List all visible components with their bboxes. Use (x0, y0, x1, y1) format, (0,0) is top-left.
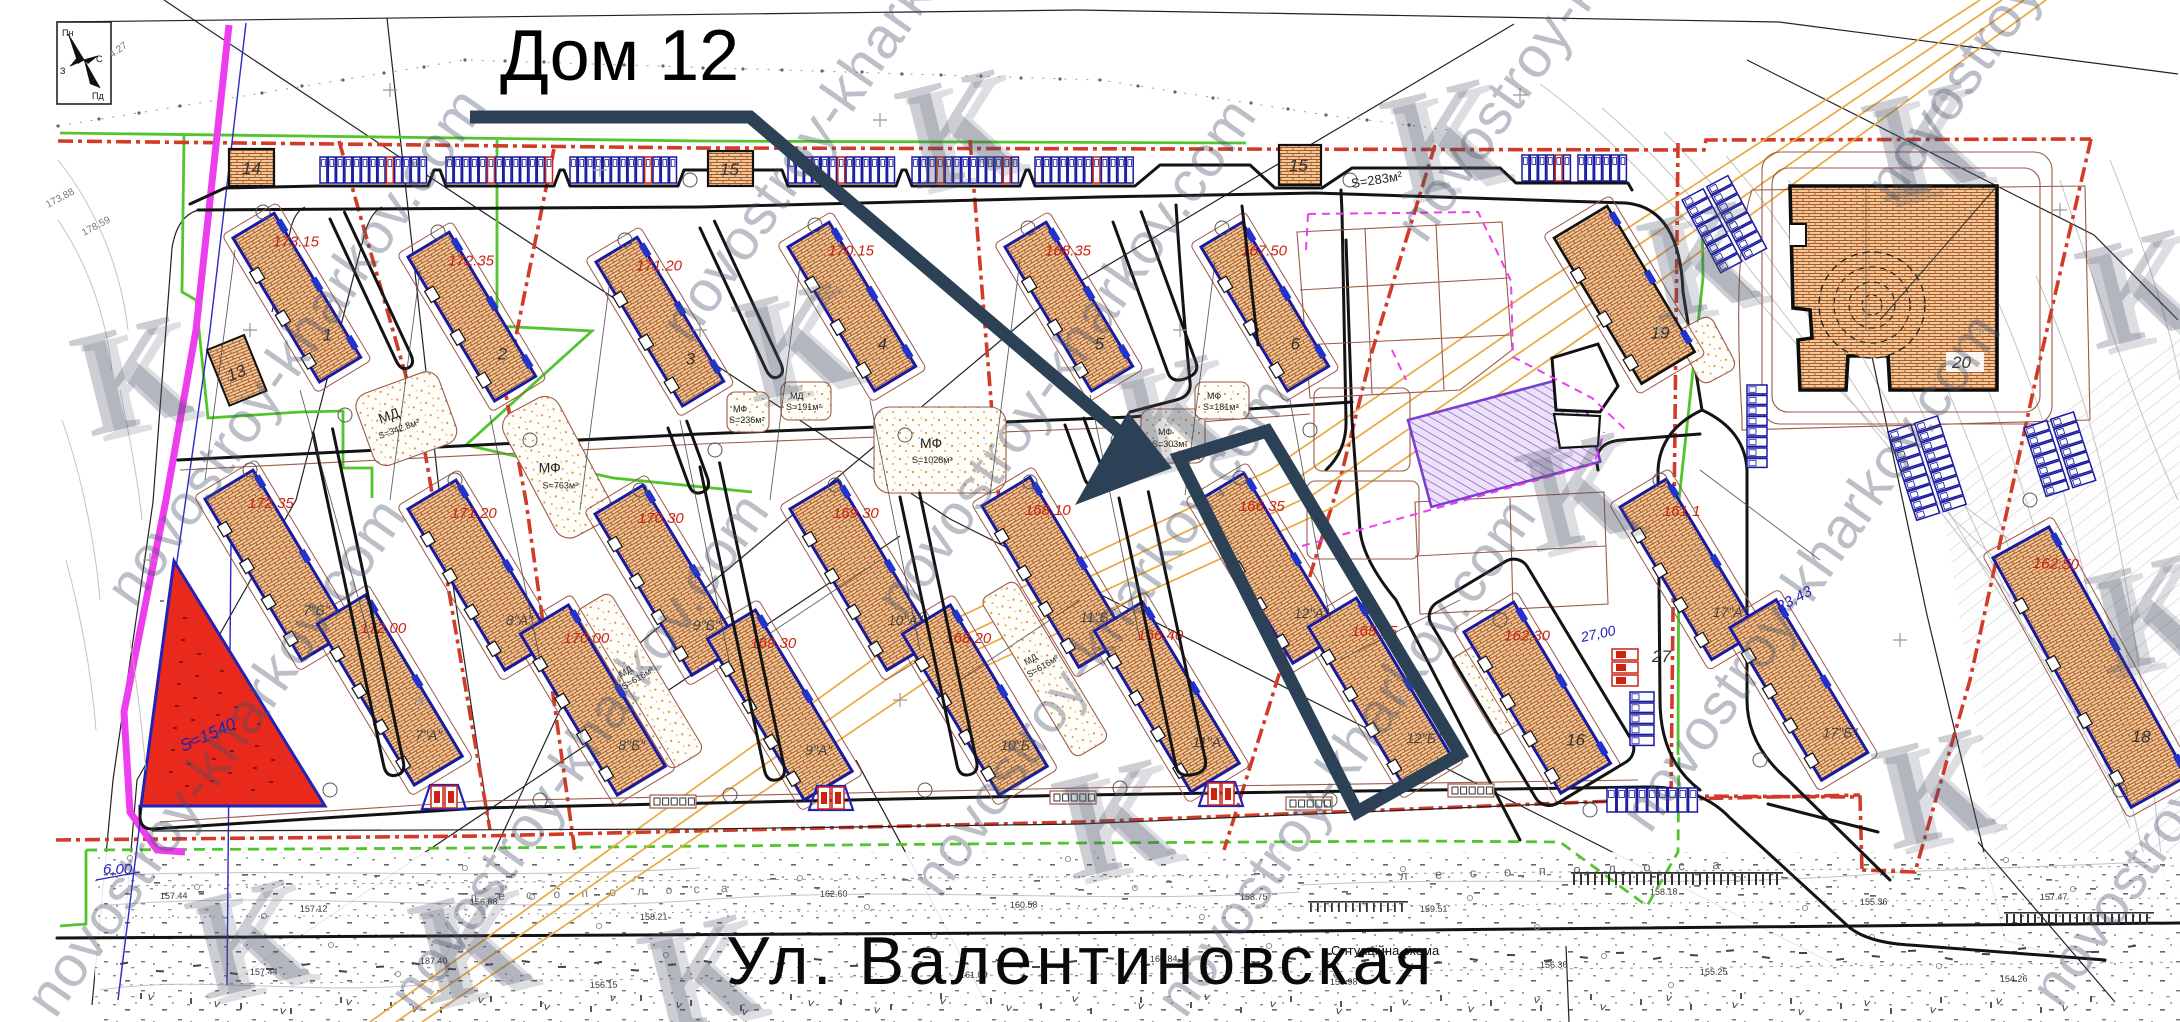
svg-text:162.60: 162.60 (820, 889, 848, 899)
svg-text:11"А": 11"А" (1192, 734, 1227, 750)
svg-text:155.36: 155.36 (1860, 897, 1888, 907)
svg-text:2: 2 (497, 344, 508, 363)
svg-text:S=763м²: S=763м² (543, 481, 578, 491)
svg-text:16: 16 (1566, 731, 1585, 750)
svg-text:8"А": 8"А" (506, 612, 534, 628)
svg-text:14: 14 (242, 159, 261, 178)
svg-text:Ситуаційна схема: Ситуаційна схема (1331, 943, 1440, 958)
svg-text:172.35: 172.35 (448, 253, 495, 270)
svg-text:27: 27 (1651, 647, 1671, 666)
svg-text:171.20: 171.20 (636, 258, 683, 275)
svg-text:З: З (60, 66, 65, 76)
svg-text:157.47: 157.47 (2040, 892, 2068, 902)
svg-text:S=1028м²: S=1028м² (912, 455, 952, 465)
svg-text:12"Б": 12"Б" (1406, 730, 1442, 746)
svg-text:156.15: 156.15 (590, 980, 618, 990)
svg-text:162.50: 162.50 (2033, 555, 2080, 574)
svg-text:155.25: 155.25 (1700, 967, 1728, 977)
svg-text:18: 18 (2131, 727, 2151, 747)
svg-text:Ул. Валентиновская: Ул. Валентиновская (726, 923, 1436, 999)
svg-text:159.51: 159.51 (1420, 904, 1448, 914)
svg-text:6: 6 (1291, 334, 1301, 353)
svg-text:161.1: 161.1 (1663, 503, 1701, 520)
svg-text:Пн: Пн (62, 28, 73, 38)
svg-text:МФ: МФ (733, 404, 747, 414)
svg-text:162.30: 162.30 (1504, 628, 1551, 645)
svg-text:173.15: 173.15 (273, 234, 320, 251)
svg-text:169.30: 169.30 (833, 505, 880, 522)
svg-text:9"А": 9"А" (805, 742, 833, 758)
svg-text:3: 3 (686, 349, 696, 368)
svg-text:168.10: 168.10 (1025, 502, 1072, 519)
svg-text:МФ: МФ (539, 460, 561, 476)
svg-text:160.58: 160.58 (1010, 900, 1038, 910)
svg-text:156.36: 156.36 (1540, 960, 1568, 970)
svg-text:166.35: 166.35 (1239, 498, 1286, 515)
svg-text:Дом 12: Дом 12 (500, 16, 739, 96)
svg-text:170.00: 170.00 (563, 630, 610, 647)
svg-text:7"А": 7"А" (415, 727, 443, 743)
svg-text:170.30: 170.30 (638, 510, 685, 527)
svg-text:МФ: МФ (920, 435, 942, 451)
svg-text:168.35: 168.35 (1045, 243, 1092, 260)
svg-text:171.20: 171.20 (451, 505, 498, 522)
svg-text:15: 15 (1289, 156, 1308, 175)
svg-text:С: С (96, 54, 103, 64)
svg-text:Пд: Пд (92, 91, 104, 101)
svg-text:172.35: 172.35 (248, 495, 295, 512)
svg-text:4: 4 (878, 334, 887, 353)
svg-text:17"Б": 17"Б" (1823, 725, 1859, 741)
svg-text:15: 15 (720, 160, 739, 179)
